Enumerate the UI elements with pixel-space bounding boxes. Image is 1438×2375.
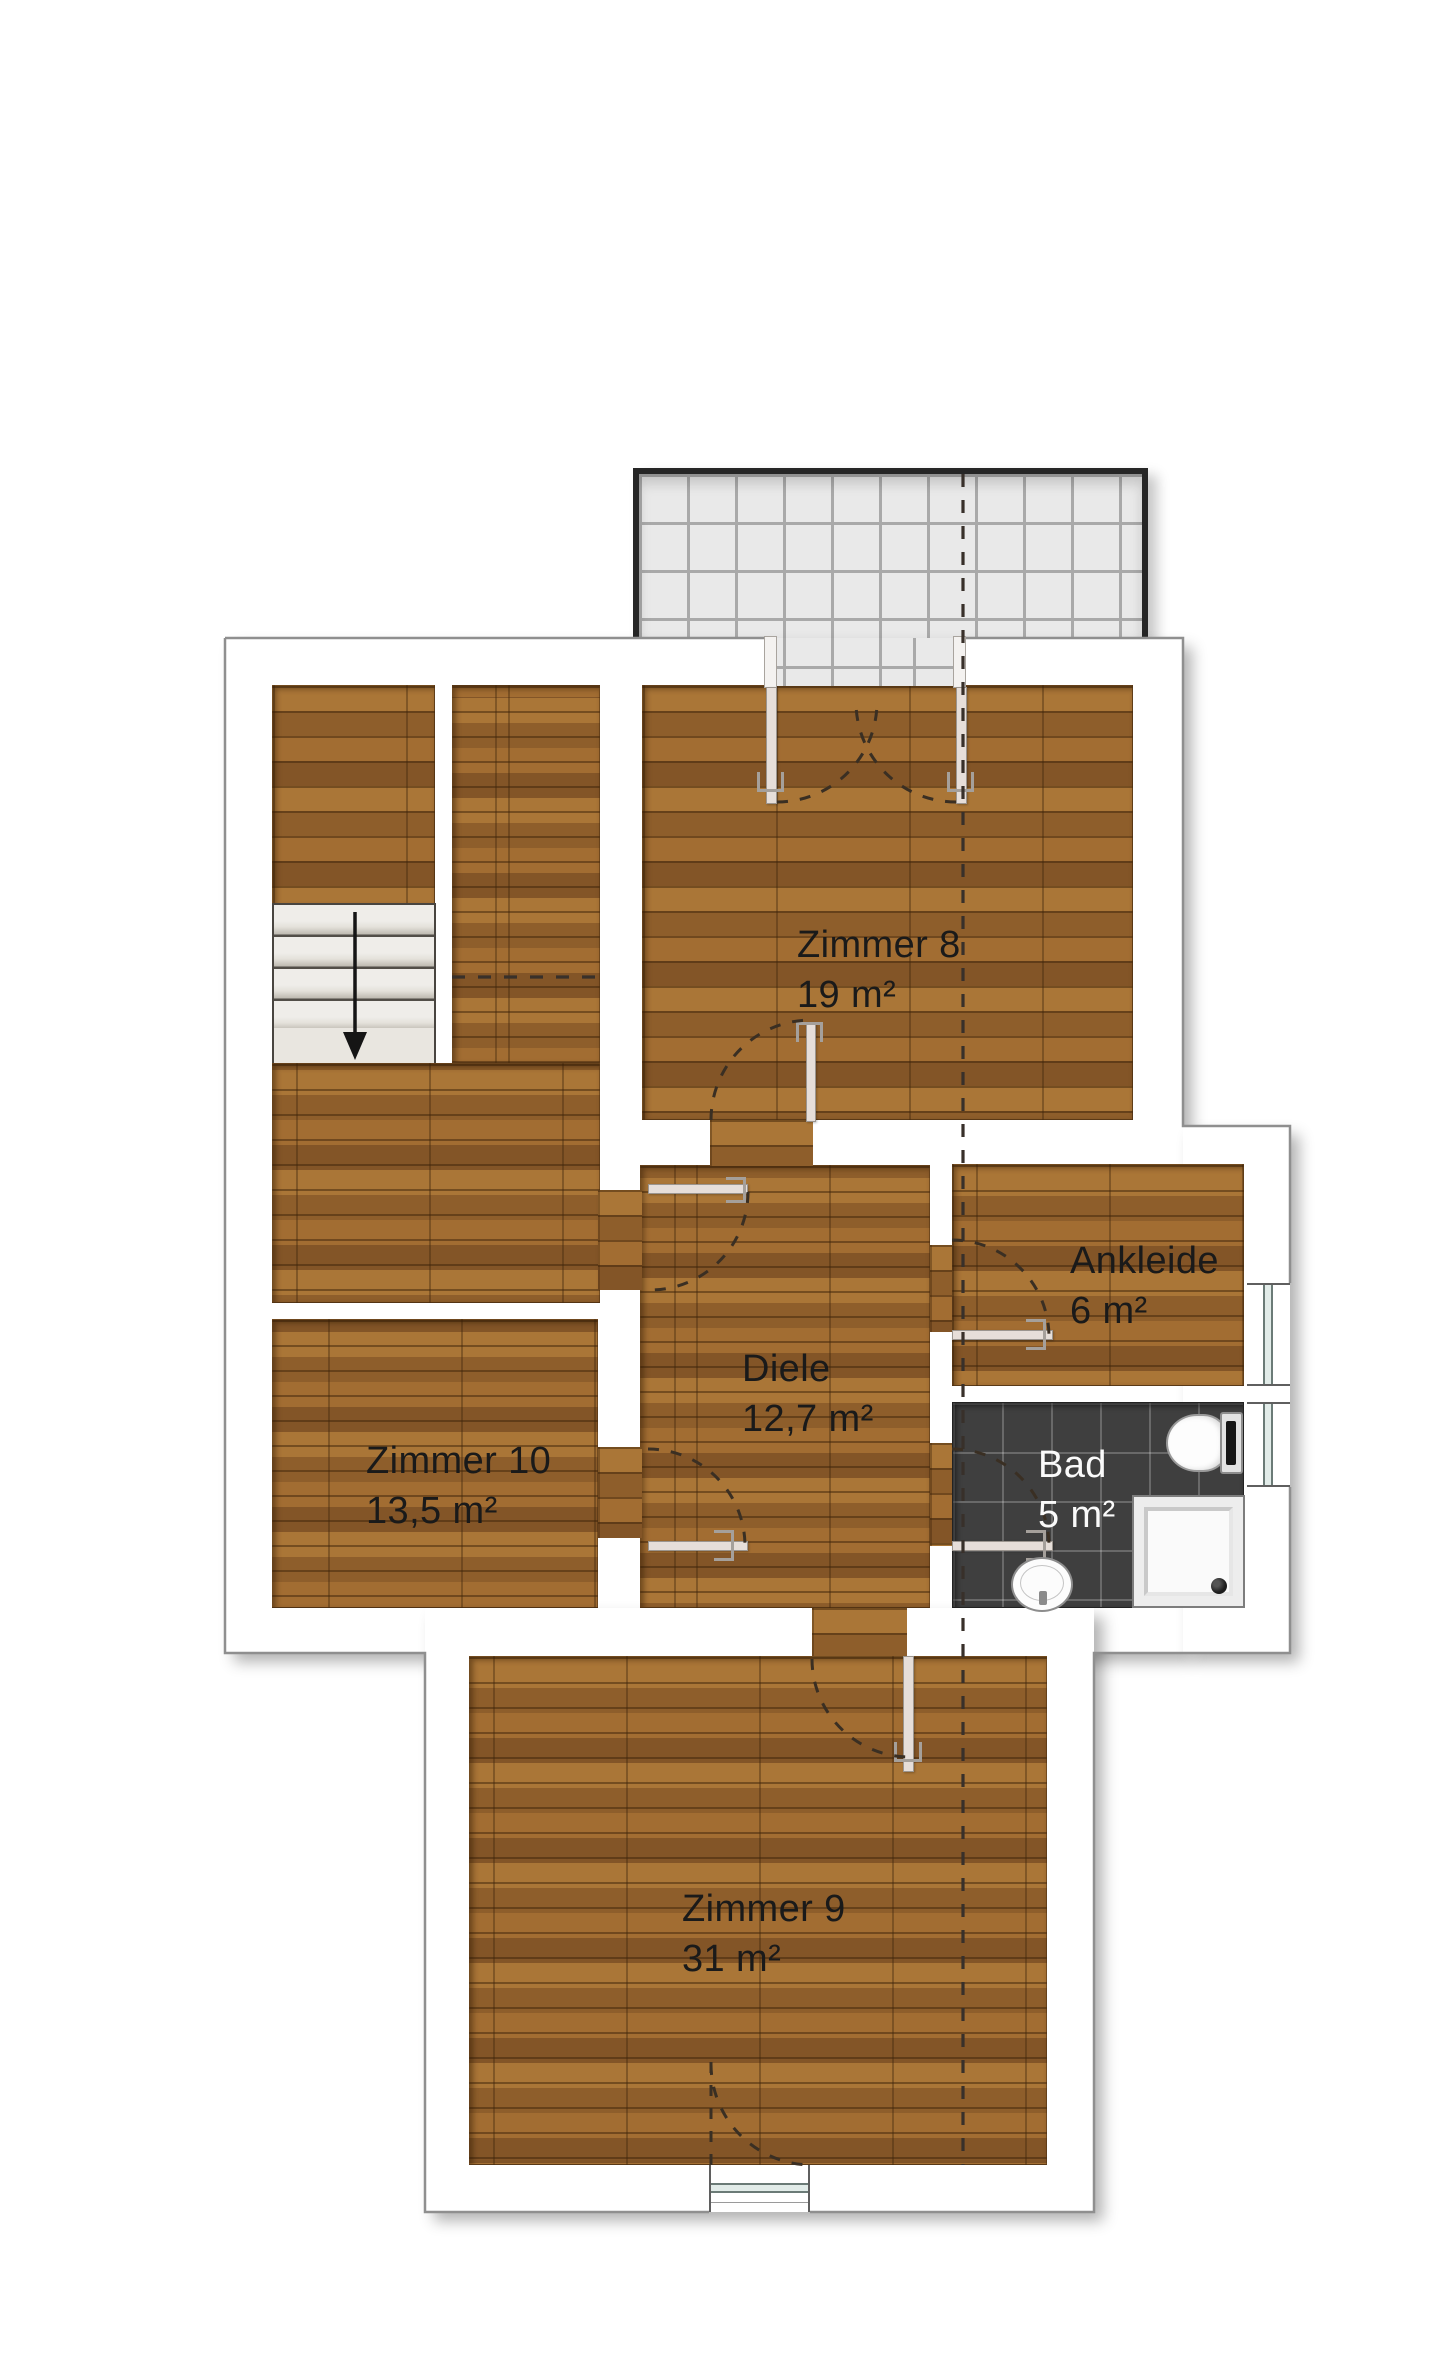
shower-drain-icon [1211, 1578, 1227, 1594]
room-name: Diele [742, 1344, 874, 1394]
door-hinge-icon [726, 1177, 746, 1203]
opening-ankleide-door [930, 1245, 954, 1332]
window-bad [1247, 1402, 1290, 1487]
door-hinge-icon [757, 772, 784, 792]
toilet-icon [1166, 1414, 1228, 1472]
label-diele: Diele 12,7 m² [742, 1344, 874, 1444]
window-zimmer9 [709, 2165, 810, 2212]
stair-landing [274, 1028, 434, 1063]
room-name: Bad [1038, 1440, 1116, 1490]
staircase [272, 903, 436, 1065]
door-hinge-icon [714, 1530, 734, 1561]
label-bad: Bad 5 m² [1038, 1440, 1116, 1540]
label-zimmer9: Zimmer 9 31 m² [682, 1884, 846, 1984]
room-area: 5 m² [1038, 1490, 1116, 1540]
label-zimmer10: Zimmer 10 13,5 m² [366, 1436, 551, 1536]
toilet-cistern-slot [1226, 1421, 1236, 1465]
faucet-icon [1039, 1591, 1047, 1605]
room-name: Zimmer 10 [366, 1436, 551, 1486]
label-zimmer8: Zimmer 8 19 m² [797, 920, 961, 1020]
floor-hall-lower [272, 1063, 600, 1303]
shower-icon [1132, 1495, 1245, 1608]
label-ankleide: Ankleide 6 m² [1070, 1236, 1219, 1336]
opening-zimmer9-door [812, 1608, 907, 1658]
room-area: 13,5 m² [366, 1486, 551, 1536]
balcony-door-jamb-right [953, 636, 966, 688]
opening-zimmer8-door [710, 1120, 813, 1166]
room-area: 6 m² [1070, 1286, 1219, 1336]
stair-treads [274, 905, 434, 1028]
room-area: 31 m² [682, 1934, 846, 1984]
door-hinge-icon [894, 1742, 922, 1762]
room-name: Ankleide [1070, 1236, 1219, 1286]
window-sill-line [711, 2202, 808, 2203]
window-ankleide [1247, 1283, 1290, 1386]
balcony-door-jamb-left [764, 636, 777, 688]
window-glass [1263, 1404, 1273, 1485]
opening-hall-diele [598, 1190, 642, 1290]
balcony-terrace [633, 468, 1148, 645]
room-area: 12,7 m² [742, 1394, 874, 1444]
floor-zimmer8 [642, 685, 1133, 1120]
toilet-cistern-icon [1220, 1412, 1243, 1474]
balcony-door-opening [777, 638, 955, 686]
door-hinge-icon [947, 772, 974, 792]
opening-zimmer10-door [598, 1447, 642, 1538]
window-glass [711, 2183, 808, 2193]
opening-bad-door [930, 1443, 954, 1546]
door-hinge-icon [1026, 1319, 1046, 1350]
washbasin-icon [1011, 1557, 1073, 1612]
room-area: 19 m² [797, 970, 961, 1020]
floor-corridor [452, 685, 600, 1063]
room-name: Zimmer 9 [682, 1884, 846, 1934]
room-name: Zimmer 8 [797, 920, 961, 970]
floor-plan-canvas: Zimmer 8 19 m² Ankleide 6 m² Diele 12,7 … [0, 0, 1438, 2375]
window-glass [1263, 1285, 1273, 1384]
floor-stair-compartment [272, 685, 435, 905]
door-hinge-icon [796, 1022, 823, 1042]
